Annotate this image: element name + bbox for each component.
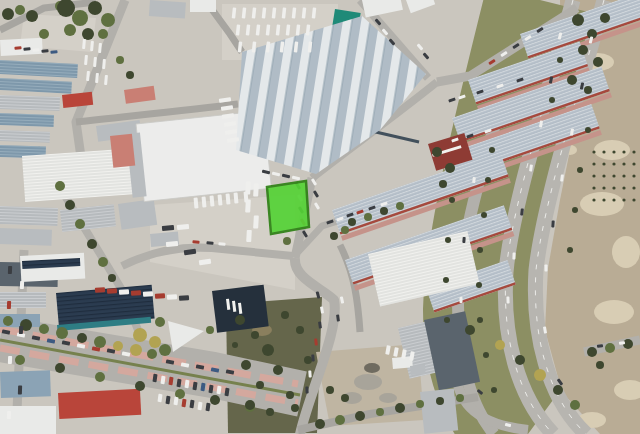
tree — [534, 369, 546, 381]
ground-patch — [612, 236, 640, 268]
tree — [567, 247, 573, 253]
tree — [113, 341, 123, 351]
vehicle — [131, 290, 141, 296]
tree — [256, 381, 264, 389]
vehicle — [8, 356, 12, 364]
tree — [56, 327, 68, 339]
screenshot-root — [0, 0, 640, 434]
tree — [578, 45, 588, 55]
tree — [241, 360, 251, 370]
tree — [98, 257, 108, 267]
tree — [600, 13, 610, 23]
vehicle — [7, 301, 11, 309]
tree — [55, 181, 65, 191]
tree — [632, 186, 635, 189]
tree — [330, 232, 338, 240]
building — [420, 388, 458, 433]
tree — [266, 408, 274, 416]
tree — [291, 404, 299, 412]
tree — [116, 56, 124, 64]
roof — [0, 206, 58, 226]
tree — [570, 400, 580, 410]
vehicle — [218, 242, 225, 246]
tree — [3, 316, 13, 326]
tree — [612, 186, 615, 189]
tree — [341, 226, 349, 234]
building — [0, 292, 46, 308]
tree — [88, 1, 102, 15]
tree — [612, 150, 615, 153]
tree — [632, 150, 635, 153]
tree — [130, 344, 142, 356]
tree — [476, 282, 482, 288]
building — [0, 130, 50, 143]
tree — [584, 86, 592, 94]
tree — [235, 315, 245, 325]
vehicle — [18, 385, 22, 394]
vehicle — [119, 289, 129, 295]
tree — [77, 333, 87, 343]
tree — [612, 198, 615, 201]
tree — [477, 247, 483, 253]
building — [190, 0, 216, 12]
roof — [0, 292, 46, 308]
tree — [39, 29, 49, 39]
tree — [380, 207, 388, 215]
building — [149, 0, 186, 18]
vehicle — [20, 281, 24, 289]
tree — [75, 219, 85, 229]
tree — [602, 150, 605, 153]
tree — [587, 347, 597, 357]
vehicle — [8, 266, 12, 274]
roof — [118, 199, 157, 230]
highlighted-parcel-overlay[interactable] — [267, 181, 309, 234]
vehicle — [245, 199, 251, 212]
ground-patch — [354, 374, 382, 390]
vehicle — [311, 354, 315, 361]
tree — [612, 174, 615, 177]
tree — [335, 415, 345, 425]
tree — [489, 147, 495, 153]
vehicle — [23, 47, 30, 50]
building — [0, 370, 51, 398]
tree — [396, 202, 404, 210]
tree — [592, 198, 595, 201]
tree — [567, 75, 577, 85]
ground-patch — [364, 363, 380, 373]
vehicle — [179, 295, 189, 301]
vehicle — [206, 241, 213, 245]
tree — [87, 239, 97, 249]
tree — [612, 162, 615, 165]
tree — [64, 24, 76, 36]
tree — [296, 326, 304, 334]
tree — [210, 395, 220, 405]
tree — [632, 174, 635, 177]
tree — [572, 207, 578, 213]
roof — [410, 365, 426, 375]
tree — [26, 10, 38, 22]
tree — [395, 403, 405, 413]
tree — [101, 13, 115, 27]
tree — [553, 385, 563, 395]
tree — [149, 336, 161, 348]
tree — [315, 419, 325, 429]
vehicle — [506, 296, 509, 303]
building — [410, 365, 426, 375]
vehicle — [162, 225, 174, 231]
building — [0, 95, 60, 111]
building — [0, 228, 52, 246]
tree — [147, 349, 157, 359]
tree — [572, 14, 584, 26]
tree — [376, 408, 384, 416]
tree — [364, 213, 372, 221]
tree — [416, 400, 424, 408]
vehicle — [50, 50, 57, 53]
tree — [577, 167, 583, 173]
vehicle — [107, 288, 117, 294]
tree — [515, 355, 525, 365]
vehicle — [14, 46, 21, 49]
vehicle — [7, 411, 11, 419]
roof — [420, 388, 458, 433]
tree — [483, 352, 489, 358]
vehicle — [308, 370, 311, 377]
roof — [0, 228, 52, 246]
tree — [592, 174, 595, 177]
tree — [622, 186, 625, 189]
tree — [456, 394, 464, 402]
tree — [596, 361, 604, 369]
tree — [94, 336, 106, 348]
tree — [481, 212, 487, 218]
tree — [251, 331, 259, 339]
tree — [72, 10, 88, 26]
roof — [149, 0, 186, 18]
tree — [82, 28, 94, 40]
vehicle — [545, 265, 548, 272]
tree — [557, 57, 563, 63]
tree — [592, 150, 595, 153]
vehicle — [253, 183, 259, 196]
tree — [605, 343, 615, 353]
tree — [445, 163, 455, 173]
tree — [443, 277, 449, 283]
tree — [593, 57, 603, 67]
vehicle — [551, 220, 554, 227]
satellite-map-canvas[interactable] — [0, 0, 640, 434]
vehicle — [460, 297, 463, 303]
vehicle — [155, 293, 165, 299]
tree — [491, 387, 497, 393]
tree — [622, 162, 625, 165]
tree — [549, 97, 555, 103]
tree — [602, 186, 605, 189]
vehicle — [32, 48, 39, 51]
tree — [39, 324, 49, 334]
vehicle — [177, 224, 189, 230]
tree — [65, 200, 75, 210]
tree — [283, 237, 291, 245]
roof — [0, 95, 60, 111]
tree — [159, 344, 171, 356]
tree — [155, 317, 165, 327]
vehicle — [305, 386, 308, 393]
tree — [632, 162, 635, 165]
vehicle — [166, 241, 178, 247]
tree — [304, 356, 312, 364]
tree — [262, 344, 274, 356]
tree — [15, 5, 25, 15]
tree — [449, 197, 455, 203]
building — [0, 113, 54, 127]
vehicle — [245, 181, 251, 194]
building — [118, 199, 157, 230]
roof — [110, 134, 135, 168]
roof — [0, 370, 51, 398]
roof — [0, 406, 56, 434]
vehicle — [462, 237, 465, 243]
tree — [232, 342, 238, 348]
roof — [58, 389, 141, 419]
building — [0, 206, 58, 226]
tree — [341, 394, 349, 402]
tree — [15, 355, 25, 365]
tree — [206, 326, 214, 334]
tree — [326, 386, 334, 394]
tree — [98, 29, 108, 39]
vehicle — [41, 49, 48, 52]
tree — [622, 150, 625, 153]
tree — [108, 274, 116, 282]
roof — [0, 130, 50, 143]
tree — [622, 174, 625, 177]
building — [0, 406, 56, 434]
tree — [55, 363, 65, 373]
tree — [485, 177, 491, 183]
tree — [2, 8, 14, 20]
tree — [126, 71, 134, 79]
vehicle — [512, 252, 515, 259]
tree — [355, 411, 365, 421]
ground-patch — [594, 140, 630, 160]
tree — [495, 340, 505, 350]
tree — [135, 381, 145, 391]
vehicle — [167, 294, 177, 300]
tree — [592, 162, 595, 165]
building — [110, 134, 135, 168]
tree — [95, 372, 105, 382]
ground-patch — [379, 393, 397, 403]
tree — [585, 127, 591, 133]
tree — [245, 400, 255, 410]
roof — [0, 113, 54, 127]
tree — [465, 325, 475, 335]
tree — [592, 186, 595, 189]
tree — [602, 162, 605, 165]
tree — [439, 180, 447, 188]
tree — [444, 317, 450, 323]
roof — [190, 0, 216, 12]
vehicle — [19, 326, 23, 334]
ground-patch — [594, 300, 634, 324]
tree — [286, 391, 294, 399]
vehicle — [192, 240, 199, 243]
tree — [632, 198, 635, 201]
vehicle — [143, 291, 153, 297]
ground-patch — [580, 192, 624, 216]
tree — [133, 328, 147, 342]
tree — [273, 365, 283, 375]
vehicle — [246, 230, 252, 242]
tree — [348, 218, 356, 226]
red-roof-warehouse — [58, 389, 141, 419]
tree — [436, 397, 444, 405]
tree — [432, 147, 442, 157]
vehicle — [253, 215, 259, 228]
tree — [622, 198, 625, 201]
vehicle — [95, 287, 105, 293]
tree — [477, 317, 483, 323]
tree — [602, 174, 605, 177]
tree — [602, 198, 605, 201]
tree — [281, 311, 289, 319]
tree — [445, 237, 451, 243]
